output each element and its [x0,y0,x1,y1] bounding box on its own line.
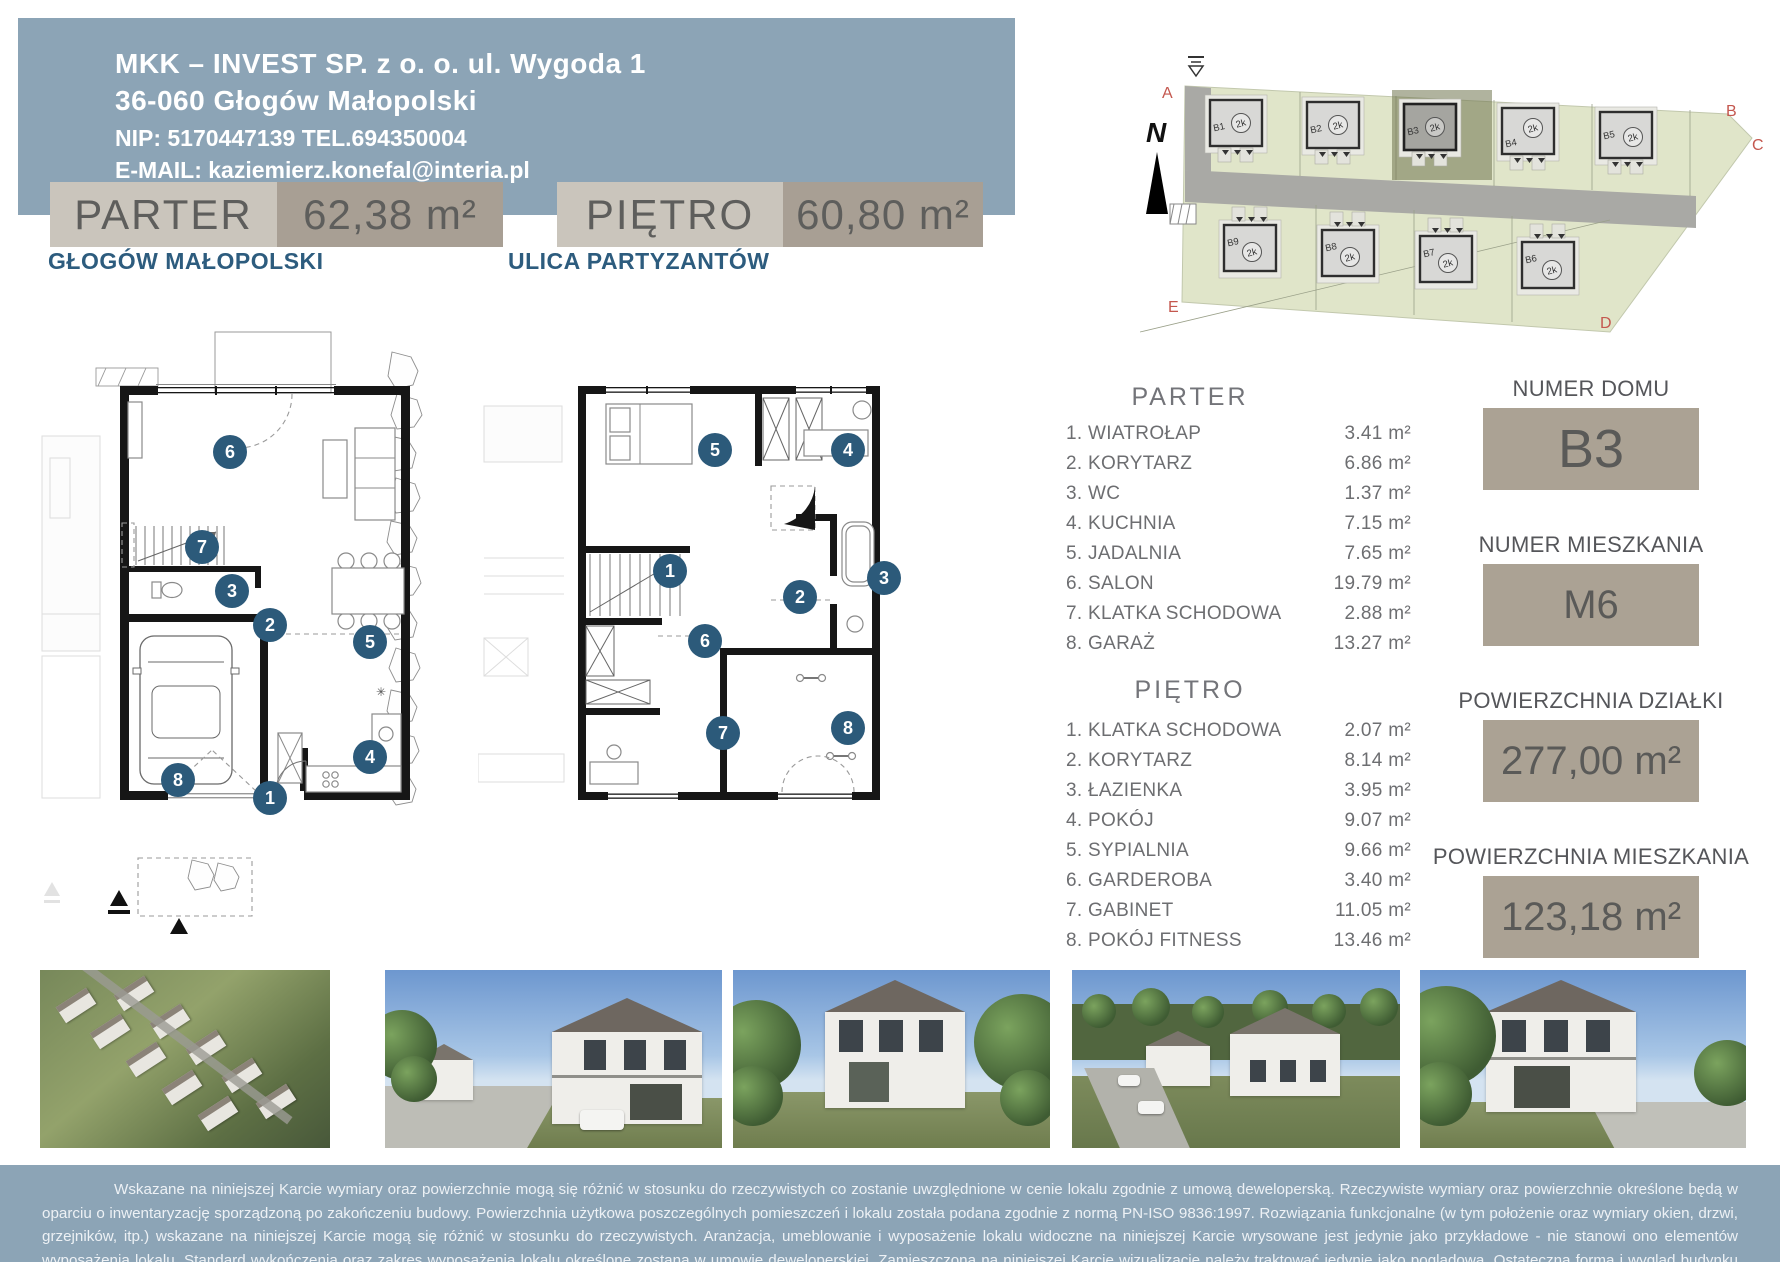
room-badge: 3 [867,561,901,595]
room-badge: 2 [783,580,817,614]
house-b4: B4 2k [1497,103,1559,170]
house-b1: B1 2k [1205,95,1267,162]
photo-estate-street [1072,970,1400,1148]
room-badge: 7 [185,530,219,564]
room-row: 6. GARDEROBA 3.40 m² [1066,866,1411,896]
info-value: 277,00 m² [1483,720,1699,802]
room-name: 1. KLATKA SCHODOWA [1066,720,1282,742]
house-b3-highlighted: B3 2k [1399,99,1461,166]
info-item: NUMER DOMU B3 [1483,376,1699,490]
room-name: 7. GABINET [1066,900,1174,922]
room-name: 2. KORYTARZ [1066,750,1192,772]
svg-text:✳: ✳ [376,685,386,699]
room-area: 3.41 m² [1344,423,1411,445]
room-area: 13.27 m² [1334,633,1411,655]
disclaimer-text: Wskazane na niniejszej Karcie wymiary or… [42,1178,1738,1262]
room-name: 6. GARDEROBA [1066,870,1212,892]
kitchen: ✳ [278,685,401,792]
neighbour-unit-ghost [478,406,564,782]
door-fan [771,486,815,530]
garage-car [133,636,256,798]
pietro-tab-area: 60,80 m² [783,182,983,247]
pietro-room-list: 1. KLATKA SCHODOWA 2.07 m² 2. KORYTARZ 8… [1066,716,1411,956]
room-area: 7.65 m² [1344,543,1411,565]
bed [606,404,692,464]
roof-outline [215,332,331,393]
house-b5: B5 2k [1595,107,1657,174]
parter-area-tab: PARTER 62,38 m² [50,182,503,247]
boundary-letter: E [1168,299,1179,316]
parter-room-list: 1. WIATROŁAP 3.41 m² 2. KORYTARZ 6.86 m²… [1066,419,1411,659]
room-name: 5. SYPIALNIA [1066,840,1189,862]
room-badge: 1 [653,554,687,588]
room-row: 1. KLATKA SCHODOWA 2.07 m² [1066,716,1411,746]
room-area: 1.37 m² [1344,483,1411,505]
pietro-floor-plan [478,318,898,943]
photo-street-view [385,970,722,1148]
room-name: 3. WC [1066,483,1120,505]
boundary-letter: B [1726,103,1737,120]
info-label: POWIERZCHNIA MIESZKANIA [1433,844,1749,870]
info-value: 123,18 m² [1483,876,1699,958]
room-name: 8. POKÓJ FITNESS [1066,930,1242,952]
room-badge: 8 [161,763,195,797]
legal-disclaimer: Wskazane na niniejszej Karcie wymiary or… [0,1165,1780,1262]
room-name: 1. WIATROŁAP [1066,423,1201,445]
office-desk [590,745,638,784]
room-row: 2. KORYTARZ 6.86 m² [1066,449,1411,479]
room-badge: 4 [353,740,387,774]
photo-garden-view [733,970,1050,1148]
room-area: 8.14 m² [1344,750,1411,772]
parter-tab-label: PARTER [50,182,277,247]
room-row: 1. WIATROŁAP 3.41 m² [1066,419,1411,449]
photo-aerial-view [40,970,330,1148]
room-name: 4. POKÓJ [1066,810,1154,832]
room-row: 7. KLATKA SCHODOWA 2.88 m² [1066,599,1411,629]
parter-list-heading: PARTER [1090,383,1290,412]
unit-info-column: NUMER DOMU B3 NUMER MIESZKANIA M6 POWIER… [1483,376,1699,958]
room-badge: 1 [253,781,287,815]
neighbour-unit-ghost [42,436,100,903]
room-badge: 2 [253,608,287,642]
boundary-letter: C [1752,137,1764,154]
room-row: 8. GARAŻ 13.27 m² [1066,629,1411,659]
pietro-tab-label: PIĘTRO [557,182,783,247]
info-label: NUMER DOMU [1513,376,1670,402]
company-nip-tel: NIP: 5170447139 TEL.694350004 [115,125,1015,152]
room-area: 6.86 m² [1344,453,1411,475]
room-area: 2.07 m² [1344,720,1411,742]
balcony-doors [658,600,854,792]
company-name: MKK – INVEST SP. z o. o. ul. Wygoda 1 [115,48,1015,80]
room-area: 11.05 m² [1335,900,1411,922]
toilet [152,582,182,598]
svg-text:N: N [1146,117,1167,148]
room-area: 9.07 m² [1344,810,1411,832]
room-row: 2. KORYTARZ 8.14 m² [1066,746,1411,776]
room-row: 3. WC 1.37 m² [1066,479,1411,509]
site-plan: B1 2k B2 2k B3 2k B4 [1140,40,1780,340]
room-name: 5. JADALNIA [1066,543,1181,565]
room-area: 9.66 m² [1344,840,1411,862]
photo-corner-view [1420,970,1746,1148]
room-badge: 5 [698,433,732,467]
north-compass: N [1146,117,1168,214]
room-row: 3. ŁAZIENKA 3.95 m² [1066,776,1411,806]
pietro-area-tab: PIĘTRO 60,80 m² [557,182,983,247]
info-item: POWIERZCHNIA DZIAŁKI 277,00 m² [1483,688,1699,802]
info-value: M6 [1483,564,1699,646]
room-name: 8. GARAŻ [1066,633,1155,655]
info-item: NUMER MIESZKANIA M6 [1483,532,1699,646]
company-address: 36-060 Głogów Małopolski [115,85,1015,117]
room-badge: 4 [831,433,865,467]
room-area: 19.79 m² [1334,573,1411,595]
room-area: 2.88 m² [1344,603,1411,625]
room-row: 4. POKÓJ 9.07 m² [1066,806,1411,836]
room-row: 7. GABINET 11.05 m² [1066,896,1411,926]
crosswalk [1170,204,1196,224]
room-name: 6. SALON [1066,573,1154,595]
company-email: E-MAIL: kaziemierz.konefal@interia.pl [115,157,1015,184]
room-row: 5. JADALNIA 7.65 m² [1066,539,1411,569]
info-label: NUMER MIESZKANIA [1479,532,1704,558]
info-value: B3 [1483,408,1699,490]
room-badge: 6 [213,435,247,469]
parter-tab-area: 62,38 m² [277,182,503,247]
room-row: 4. KUCHNIA 7.15 m² [1066,509,1411,539]
room-name: 2. KORYTARZ [1066,453,1192,475]
sofa [128,402,395,520]
room-area: 3.40 m² [1344,870,1411,892]
room-name: 4. KUCHNIA [1066,513,1176,535]
room-area: 13.46 m² [1334,930,1411,952]
room-badge: 8 [831,711,865,745]
benchmark-icon [1188,57,1204,76]
room-row: 5. SYPIALNIA 9.66 m² [1066,836,1411,866]
street-title: ULICA PARTYZANTÓW [508,248,769,275]
house-b2: B2 2k [1302,97,1364,164]
room-area: 3.95 m² [1344,780,1411,802]
boundary-letter: A [1162,85,1173,102]
room-row: 6. SALON 19.79 m² [1066,569,1411,599]
room-badge: 3 [215,574,249,608]
property-card: MKK – INVEST SP. z o. o. ul. Wygoda 1 36… [0,0,1780,1262]
room-row: 8. POKÓJ FITNESS 13.46 m² [1066,926,1411,956]
location-title: GŁOGÓW MAŁOPOLSKI [48,248,324,275]
room-area: 7.15 m² [1344,513,1411,535]
dining-table [332,553,404,629]
room-badge: 5 [353,625,387,659]
room-badge: 7 [706,716,740,750]
room-name: 7. KLATKA SCHODOWA [1066,603,1282,625]
room-badge: 6 [688,624,722,658]
info-item: POWIERZCHNIA MIESZKANIA 123,18 m² [1483,844,1699,958]
pietro-list-heading: PIĘTRO [1090,676,1290,705]
room-name: 3. ŁAZIENKA [1066,780,1182,802]
info-label: POWIERZCHNIA DZIAŁKI [1458,688,1723,714]
parter-floor-plan: ✳ [40,318,450,943]
boundary-letter: D [1600,315,1612,332]
